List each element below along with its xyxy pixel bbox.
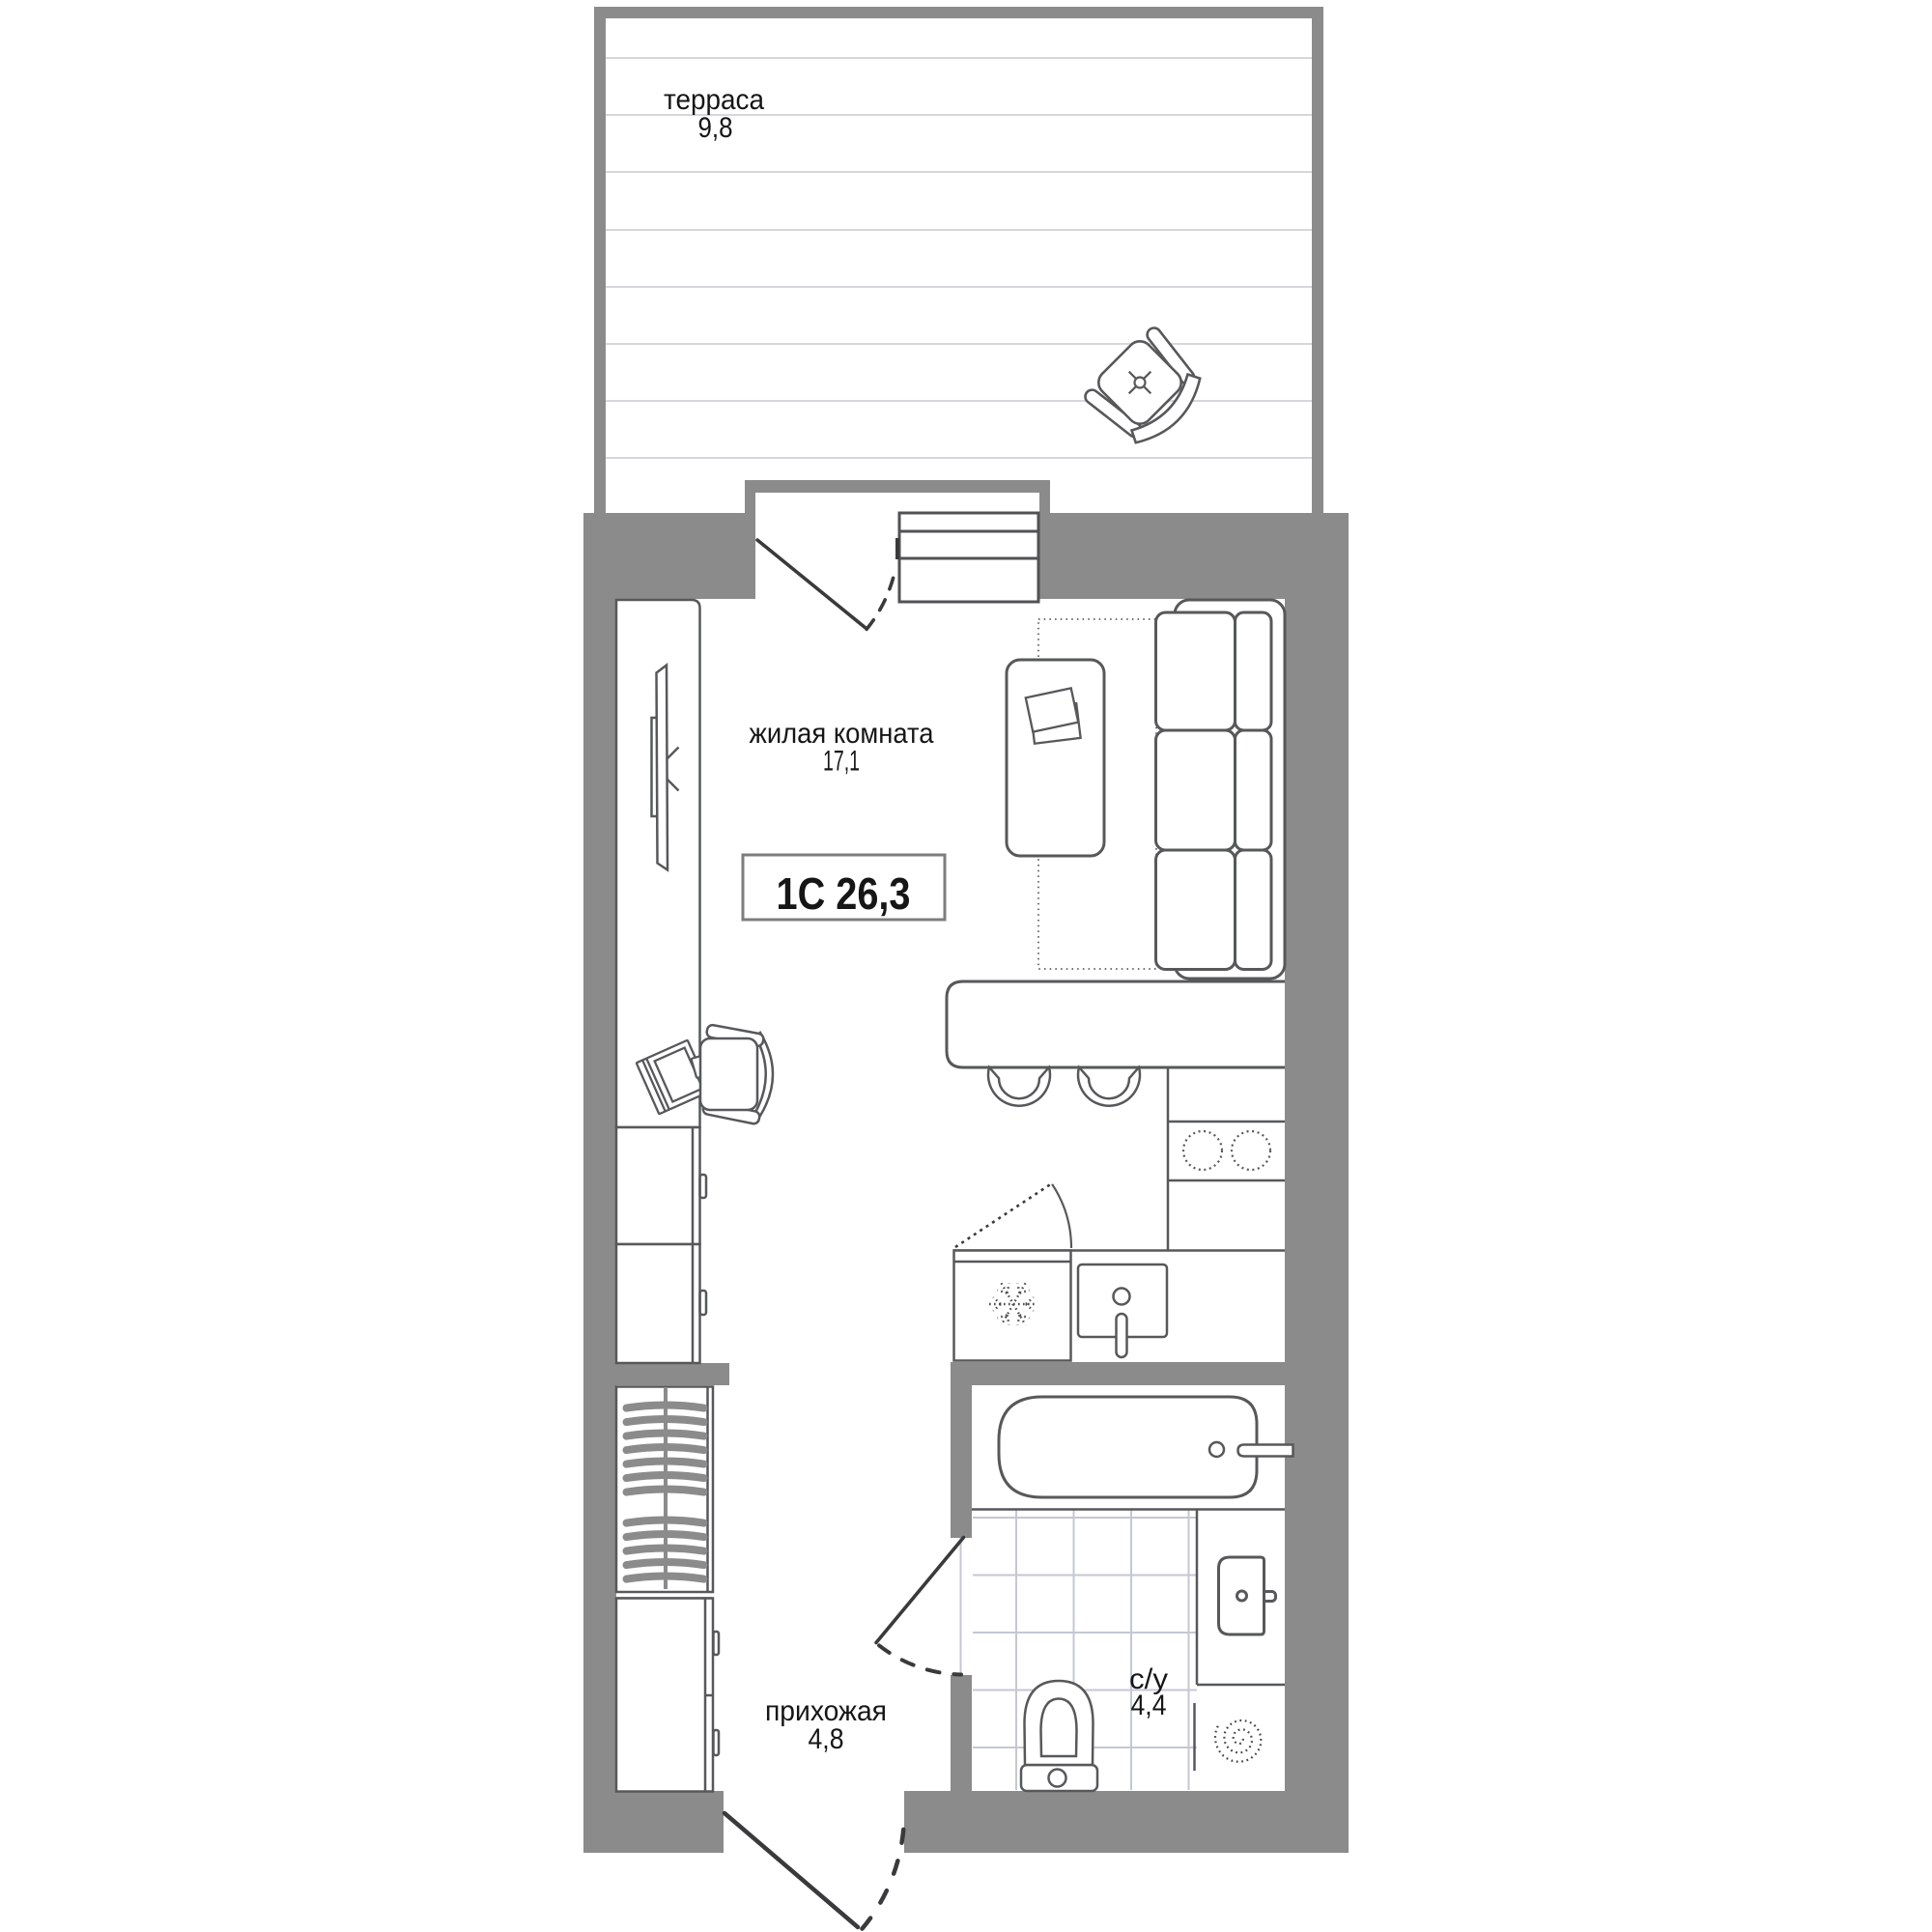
- svg-text:17,1: 17,1: [823, 746, 860, 778]
- svg-text:1С 26,3: 1С 26,3: [777, 868, 911, 919]
- svg-text:4,8: 4,8: [809, 1723, 844, 1755]
- svg-text:4,4: 4,4: [1131, 1690, 1167, 1721]
- svg-text:9,8: 9,8: [698, 112, 733, 144]
